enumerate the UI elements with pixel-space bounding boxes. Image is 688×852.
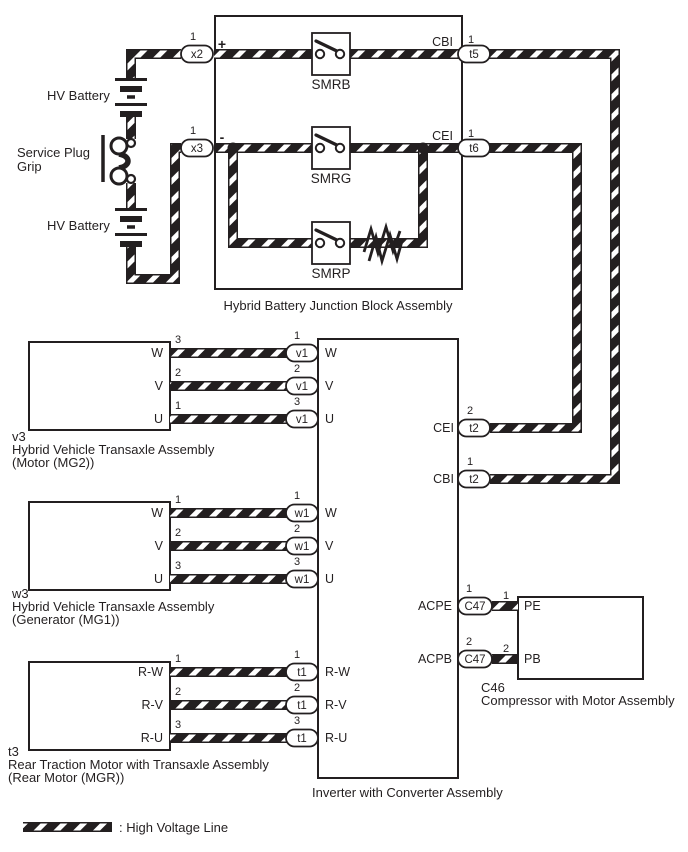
inverter-box — [318, 339, 458, 778]
acpb-pin-number: 2 — [466, 636, 472, 648]
inverter-terminal-mg1-u: U — [325, 572, 334, 586]
connector-t1-ru: t1 — [286, 730, 318, 747]
acpe-box-pin-number: 1 — [503, 590, 509, 602]
service-plug-label-line1: Service Plug — [17, 145, 90, 160]
connector-v1-label: v1 — [296, 414, 308, 426]
cei-t2-pin-number: 2 — [467, 405, 473, 417]
mg2-phase-u: U — [154, 412, 163, 426]
mgr-pin-in-rw: 1 — [294, 649, 300, 661]
hv-line-x2-to-battery — [131, 54, 181, 78]
mg2-pin-in-v: 2 — [294, 363, 300, 375]
connector-w1-u: w1 — [286, 571, 318, 588]
connector-c47-label: C47 — [464, 654, 485, 666]
connector-x2: x2 — [181, 46, 213, 63]
junction-dot — [228, 143, 239, 154]
connector-x3: x3 — [181, 140, 213, 157]
connector-t6: t6 — [458, 140, 490, 157]
mg2-pin-in-u: 3 — [294, 396, 300, 408]
mgr-phase-rv: R-V — [141, 698, 163, 712]
smrp-label: SMRP — [311, 266, 350, 281]
mg1-pin-in-u: 3 — [294, 556, 300, 568]
inverter-terminal-mgr-rw: R-W — [325, 665, 350, 679]
connector-w1-label: w1 — [294, 508, 310, 520]
cbi-signal-label: CBI — [432, 35, 453, 49]
cbi-t2-pin-number: 1 — [467, 456, 473, 468]
mg1-phase-v: V — [155, 539, 164, 553]
connector-c47-label: C47 — [464, 601, 485, 613]
mg2-pin-in-w: 1 — [294, 330, 300, 342]
legend-label: : High Voltage Line — [119, 820, 228, 835]
hv-battery-top-label: HV Battery — [47, 88, 110, 103]
hv-line-battery-to-x3 — [131, 148, 181, 279]
minus-sign: - — [220, 129, 225, 145]
connector-t5-label: t5 — [469, 49, 479, 61]
connector-t2-cei: t2 — [458, 420, 490, 437]
mg1-box — [29, 502, 170, 590]
mgr-phase-rw: R-W — [138, 665, 163, 679]
connector-t2-cbi: t2 — [458, 471, 490, 488]
t6-pin-number: 1 — [468, 128, 474, 140]
connector-t1-label: t1 — [297, 667, 307, 679]
mg2-pin-out-w: 3 — [175, 334, 181, 346]
connector-v1-u: v1 — [286, 411, 318, 428]
junction-dot — [418, 143, 429, 154]
mg1-pin-in-v: 2 — [294, 523, 300, 535]
inverter-caption: Inverter with Converter Assembly — [312, 785, 503, 800]
connector-v1-w: v1 — [286, 345, 318, 362]
connector-t1-label: t1 — [297, 733, 307, 745]
inverter-terminal-mg2-v: V — [325, 379, 334, 393]
pb-terminal-label: PB — [524, 652, 541, 666]
mgr-pin-out-rw: 1 — [175, 653, 181, 665]
t5-pin-number: 1 — [468, 34, 474, 46]
connector-c47-acpb: C47 — [458, 651, 492, 668]
mgr-pin-in-ru: 3 — [294, 715, 300, 727]
connector-t2-label: t2 — [469, 474, 479, 486]
connector-t1-label: t1 — [297, 700, 307, 712]
mg2-pin-out-u: 1 — [175, 400, 181, 412]
service-plug-grip-symbol — [103, 135, 135, 184]
mg2-phase-w: W — [151, 346, 163, 360]
connector-w1-w: w1 — [286, 505, 318, 522]
hv-line-t6-to-cei-t2 — [489, 148, 577, 428]
wiring-diagram-page: x2 x3 t5 t6 v1 v1 v1 w1 w1 w1 t1 t1 — [0, 0, 688, 852]
pe-terminal-label: PE — [524, 599, 541, 613]
smrg-label: SMRG — [311, 171, 352, 186]
mgr-pin-in-rv: 2 — [294, 682, 300, 694]
mg2-caption-line2: (Motor (MG2)) — [12, 455, 94, 470]
acpb-box-pin-number: 2 — [503, 643, 509, 655]
smrb-label: SMRB — [311, 77, 350, 92]
connector-v1-v: v1 — [286, 378, 318, 395]
mgr-caption-line2: (Rear Motor (MGR)) — [8, 770, 124, 785]
relay-smrg-symbol — [312, 127, 350, 169]
connector-x2-label: x2 — [191, 49, 203, 61]
connector-w1-label: w1 — [294, 574, 310, 586]
inverter-terminal-mg1-v: V — [325, 539, 334, 553]
x2-pin-number: 1 — [190, 31, 196, 43]
mg1-pin-out-v: 2 — [175, 527, 181, 539]
cei-signal-label: CEI — [432, 129, 453, 143]
connector-w1-label: w1 — [294, 541, 310, 553]
inverter-terminal-mgr-rv: R-V — [325, 698, 347, 712]
hv-battery-symbol-bottom — [115, 210, 147, 245]
relay-smrp-symbol — [312, 222, 350, 264]
junction-block-caption: Hybrid Battery Junction Block Assembly — [223, 298, 453, 313]
cei-t2-signal-label: CEI — [433, 421, 454, 435]
mg1-phase-w: W — [151, 506, 163, 520]
cbi-t2-signal-label: CBI — [433, 472, 454, 486]
mg1-pin-in-w: 1 — [294, 490, 300, 502]
mg1-phase-u: U — [154, 572, 163, 586]
connector-v1-label: v1 — [296, 381, 308, 393]
acpe-signal-label: ACPE — [418, 599, 452, 613]
diagram-canvas: x2 x3 t5 t6 v1 v1 v1 w1 w1 w1 t1 t1 — [0, 0, 688, 852]
relay-smrb-symbol — [312, 33, 350, 75]
compressor-caption: Compressor with Motor Assembly — [481, 693, 675, 708]
inverter-terminal-mgr-ru: R-U — [325, 731, 347, 745]
connector-t2-label: t2 — [469, 423, 479, 435]
hv-battery-bottom-label: HV Battery — [47, 218, 110, 233]
connector-x3-label: x3 — [191, 143, 203, 155]
plus-sign: + — [218, 36, 226, 52]
acpe-pin-number: 1 — [466, 583, 472, 595]
connector-t5: t5 — [458, 46, 490, 63]
x3-pin-number: 1 — [190, 125, 196, 137]
acpb-signal-label: ACPB — [418, 652, 452, 666]
connector-c47-acpe: C47 — [458, 598, 492, 615]
mg1-pin-out-w: 1 — [175, 494, 181, 506]
mg2-box — [29, 342, 170, 430]
hv-battery-symbol-top — [115, 80, 147, 115]
mg2-pin-out-v: 2 — [175, 367, 181, 379]
mg1-caption-line2: (Generator (MG1)) — [12, 612, 120, 627]
inverter-terminal-mg2-w: W — [325, 346, 337, 360]
inverter-terminal-mg1-w: W — [325, 506, 337, 520]
mg2-phase-v: V — [155, 379, 164, 393]
connector-t6-label: t6 — [469, 143, 479, 155]
connector-v1-label: v1 — [296, 348, 308, 360]
connector-t1-rw: t1 — [286, 664, 318, 681]
inverter-terminal-mg2-u: U — [325, 412, 334, 426]
mgr-phase-ru: R-U — [141, 731, 163, 745]
service-plug-label-line2: Grip — [17, 159, 42, 174]
connector-t1-rv: t1 — [286, 697, 318, 714]
mg1-pin-out-u: 3 — [175, 560, 181, 572]
hv-line-t5-to-cbi-t2 — [489, 54, 615, 479]
mgr-pin-out-ru: 3 — [175, 719, 181, 731]
connector-w1-v: w1 — [286, 538, 318, 555]
mgr-pin-out-rv: 2 — [175, 686, 181, 698]
